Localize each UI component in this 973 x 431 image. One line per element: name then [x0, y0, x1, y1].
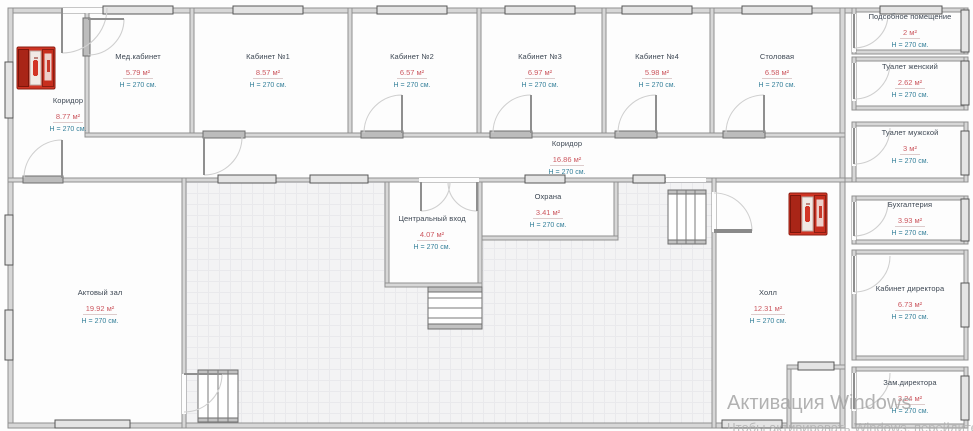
fire-cabinet-icon[interactable] [17, 47, 55, 89]
room-label-koridor-main[interactable]: Коридор 16.86 м² H = 270 см. [512, 139, 622, 178]
windows-activation-watermark: Активация Windows [727, 392, 911, 415]
room-label-kabinet-3[interactable]: Кабинет №3 6.97 м² H = 270 см. [485, 52, 595, 91]
room-label-kabinet-1[interactable]: Кабинет №1 8.57 м² H = 270 см. [213, 52, 323, 91]
room-label-stolovaya[interactable]: Столовая 6.58 м² H = 270 см. [722, 52, 832, 91]
room-label-centralnyy-vhod[interactable]: Центральный вход 4.07 м² H = 270 см. [377, 214, 487, 253]
floor-plan-canvas[interactable]: Мед.кабинет 5.79 м² H = 270 см. Кабинет … [0, 0, 973, 431]
room-label-buhgalteriya[interactable]: Бухгалтерия 3.93 м² H = 270 см. [855, 200, 965, 239]
room-label-kabinet-2[interactable]: Кабинет №2 6.57 м² H = 270 см. [357, 52, 467, 91]
room-label-tualet-zhenskiy[interactable]: Туалет женский 2.62 м² H = 270 см. [855, 62, 965, 101]
room-label-ohrana[interactable]: Охрана 3.41 м² H = 270 см. [493, 192, 603, 231]
windows-activation-watermark-subtext: Чтобы активировать Windows, перейдите в … [727, 420, 973, 431]
door-sills [23, 18, 765, 183]
room-label-podsobnoe[interactable]: Подсобное помещение 2 м² H = 270 см. [855, 12, 965, 51]
room-label-med-kabinet[interactable]: Мед.кабинет 5.79 м² H = 270 см. [83, 52, 193, 91]
room-label-kabinet-direktora[interactable]: Кабинет директора 6.73 м² H = 270 см. [855, 284, 965, 323]
room-label-tualet-muzhskoy[interactable]: Туалет мужской 3 м² H = 270 см. [855, 128, 965, 167]
fire-cabinet-icon[interactable] [789, 193, 827, 235]
room-label-aktovyy-zal[interactable]: Актовый зал 19.92 м² H = 270 см. [45, 288, 155, 327]
room-label-kabinet-4[interactable]: Кабинет №4 5.98 м² H = 270 см. [602, 52, 712, 91]
room-label-koridor-left[interactable]: Коридор 8.77 м² H = 270 см. [13, 96, 123, 135]
room-label-holl[interactable]: Холл 12.31 м² H = 270 см. [713, 288, 823, 327]
